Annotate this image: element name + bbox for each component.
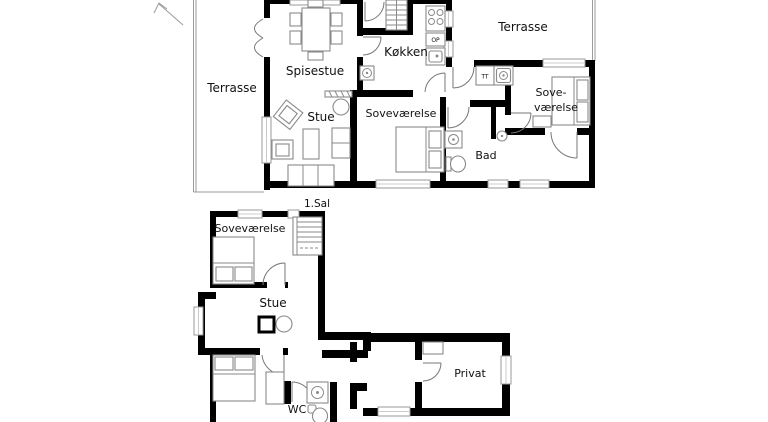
bedroom1-door-icon — [263, 263, 285, 285]
stove-icon — [426, 6, 445, 31]
label-wc: WC — [288, 403, 307, 416]
stairs-lower — [293, 217, 322, 255]
lower-floor-plan: Soveværelse Stue WC Privat — [194, 210, 511, 422]
washing-machine-icon — [494, 66, 513, 85]
water-heater-icon — [360, 66, 374, 80]
dryer-icon: TT — [476, 66, 494, 85]
label-living-room-lower: Stue — [259, 296, 286, 310]
terrace-right-edge — [593, 0, 596, 61]
kitchen-door-icon — [363, 37, 381, 55]
bed-lower-bedroom2 — [213, 355, 255, 401]
wc-toilet-icon — [308, 405, 328, 422]
label-terrace-right: Terrasse — [497, 20, 548, 34]
wc-sink-icon — [307, 382, 328, 403]
dishwasher-icon: OP — [426, 33, 445, 46]
side-table-icon — [276, 316, 292, 332]
private-door-icon — [423, 363, 441, 381]
dining-table — [290, 0, 342, 60]
label-bathroom: Bad — [475, 149, 496, 162]
floor-caption: 1.Sal — [304, 198, 330, 210]
bed-center-bedroom — [396, 127, 444, 172]
dryer-label: TT — [480, 74, 489, 81]
living-room-furniture — [272, 91, 352, 186]
label-dining-room: Spisestue — [286, 64, 344, 78]
floor-plan-page: OP TT — [0, 0, 768, 422]
hall-sink-icon — [497, 131, 507, 141]
radiator-icon — [325, 91, 352, 97]
wc-fixtures — [307, 382, 328, 422]
utility-fixtures: TT — [476, 66, 513, 85]
stairs-upper — [386, 0, 407, 30]
utility-door-icon — [453, 67, 474, 88]
label-bedroom-center: Soveværelse — [366, 107, 437, 120]
label-bedroom-lower: Soveværelse — [215, 222, 286, 235]
entry-door-icon — [365, 2, 384, 21]
wardrobe-icon — [266, 372, 284, 404]
bedroom-right-door-icon — [551, 132, 577, 158]
bed-lower-bedroom1 — [213, 237, 254, 284]
label-terrace-left: Terrasse — [206, 81, 257, 95]
french-door-icon — [255, 19, 264, 57]
dishwasher-label: OP — [431, 37, 440, 44]
north-arrow-icon — [154, 3, 183, 25]
label-bedroom-right-2: værelse — [534, 101, 578, 114]
label-kitchen: Køkken — [384, 45, 428, 59]
label-bedroom-right-1: Sove- — [536, 86, 567, 99]
upper-floor-plan: OP TT — [154, 0, 595, 192]
kitchen-sink-icon — [426, 48, 445, 65]
terrace-left-edge — [194, 0, 265, 192]
bath-sink-icon — [445, 131, 462, 148]
closet-icon — [423, 342, 443, 354]
wood-stove-icon — [259, 317, 274, 332]
hall-door-icon — [425, 73, 445, 92]
bath-door-icon — [448, 107, 469, 128]
label-living-room-upper: Stue — [307, 110, 334, 124]
floor-plan-canvas: OP TT — [0, 0, 768, 422]
label-private: Privat — [454, 367, 486, 380]
toilet-icon — [446, 156, 466, 172]
